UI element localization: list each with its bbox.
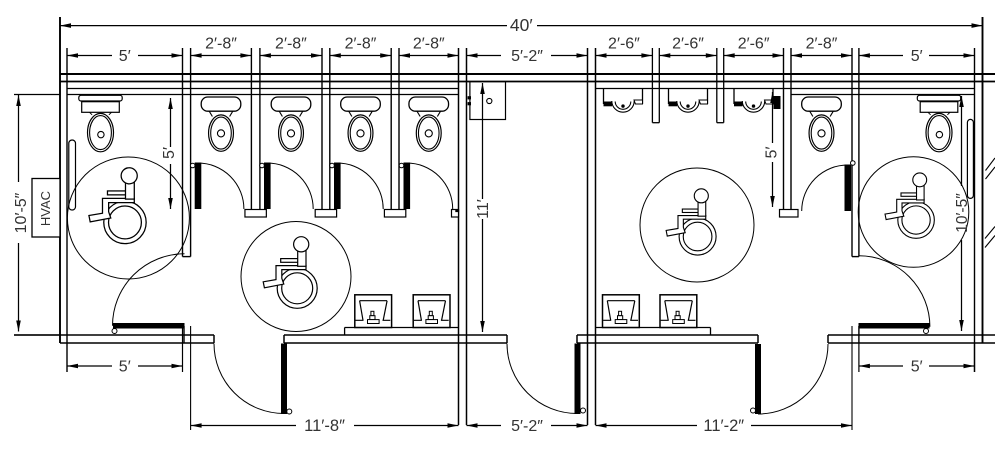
- svg-text:5′: 5′: [119, 359, 131, 376]
- svg-text:2′-6″: 2′-6″: [738, 36, 770, 53]
- svg-text:40′: 40′: [510, 15, 533, 35]
- svg-text:10′-5″: 10′-5″: [13, 192, 30, 233]
- svg-text:2′-6″: 2′-6″: [608, 36, 640, 53]
- svg-text:11′-2″: 11′-2″: [703, 417, 744, 435]
- svg-text:2′-8″: 2′-8″: [345, 36, 377, 53]
- svg-text:5′: 5′: [911, 48, 923, 65]
- svg-text:10′-5″: 10′-5″: [954, 193, 971, 233]
- svg-text:2′-8″: 2′-8″: [275, 36, 307, 53]
- svg-text:5′: 5′: [763, 147, 780, 159]
- svg-text:2′-8″: 2′-8″: [205, 36, 237, 53]
- svg-text:11′-8″: 11′-8″: [304, 417, 345, 435]
- svg-text:2′-8″: 2′-8″: [413, 36, 445, 53]
- svg-text:5′-2″: 5′-2″: [511, 48, 543, 65]
- svg-text:5′-2″: 5′-2″: [511, 418, 543, 435]
- svg-text:2′-8″: 2′-8″: [806, 36, 838, 53]
- svg-text:5′: 5′: [911, 359, 923, 376]
- svg-text:11′: 11′: [475, 199, 492, 219]
- svg-text:5′: 5′: [161, 147, 178, 159]
- svg-text:HVAC: HVAC: [38, 191, 53, 226]
- svg-text:2′-6″: 2′-6″: [672, 36, 704, 53]
- svg-text:5′: 5′: [119, 48, 131, 65]
